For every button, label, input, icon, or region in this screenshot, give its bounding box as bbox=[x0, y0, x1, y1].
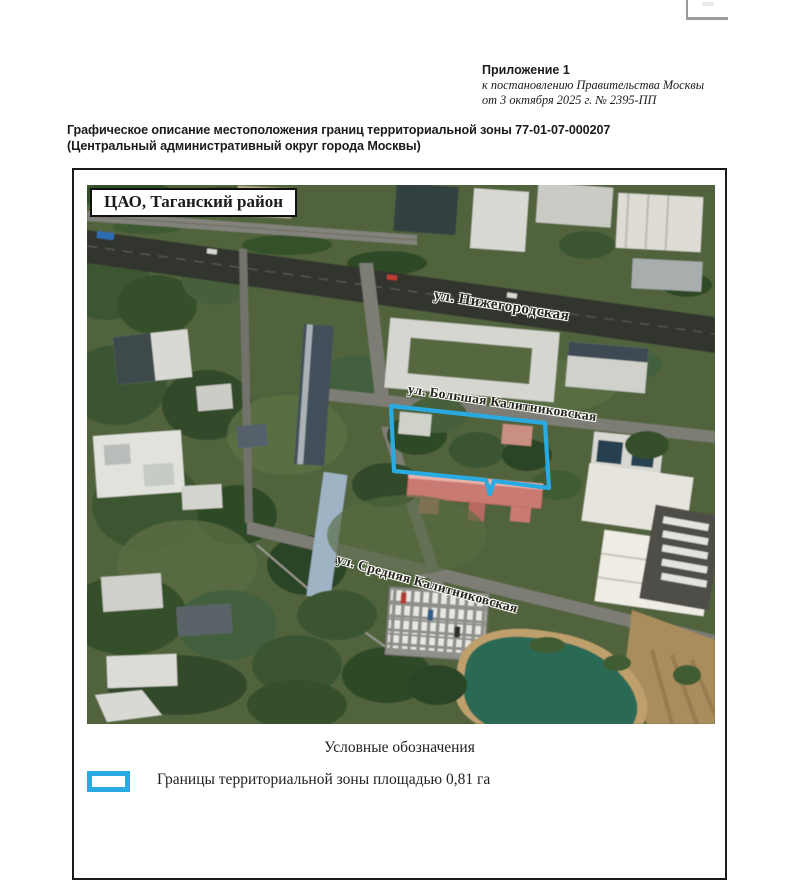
viewer-ui-fragment bbox=[686, 0, 728, 20]
appendix-number: Приложение 1 bbox=[482, 63, 802, 78]
satellite-map: ул. Нижегородская ул. Большая Калитников… bbox=[87, 185, 715, 724]
map-frame: ул. Нижегородская ул. Большая Калитников… bbox=[72, 168, 727, 880]
region-label: ЦАО, Таганский район bbox=[90, 188, 297, 217]
document-title-line-1: Графическое описание местоположения гран… bbox=[67, 122, 729, 138]
satellite-imagery bbox=[87, 185, 715, 724]
document-title: Графическое описание местоположения гран… bbox=[67, 122, 729, 154]
zone-boundary-swatch bbox=[87, 771, 130, 792]
legend-title: Условные обозначения bbox=[74, 739, 725, 757]
legend-item-label: Границы территориальной зоны площадью 0,… bbox=[157, 771, 490, 789]
appendix-header: Приложение 1 к постановлению Правительст… bbox=[482, 63, 802, 108]
viewer-ui-smudge bbox=[702, 2, 714, 6]
appendix-line-1: к постановлению Правительства Москвы bbox=[482, 78, 802, 93]
document-title-line-2: (Центральный административный округ горо… bbox=[67, 138, 729, 154]
document-page: { "header": { "appendix": "Приложение 1"… bbox=[0, 0, 809, 863]
appendix-line-2: от 3 октября 2025 г. № 2395-ПП bbox=[482, 93, 802, 108]
